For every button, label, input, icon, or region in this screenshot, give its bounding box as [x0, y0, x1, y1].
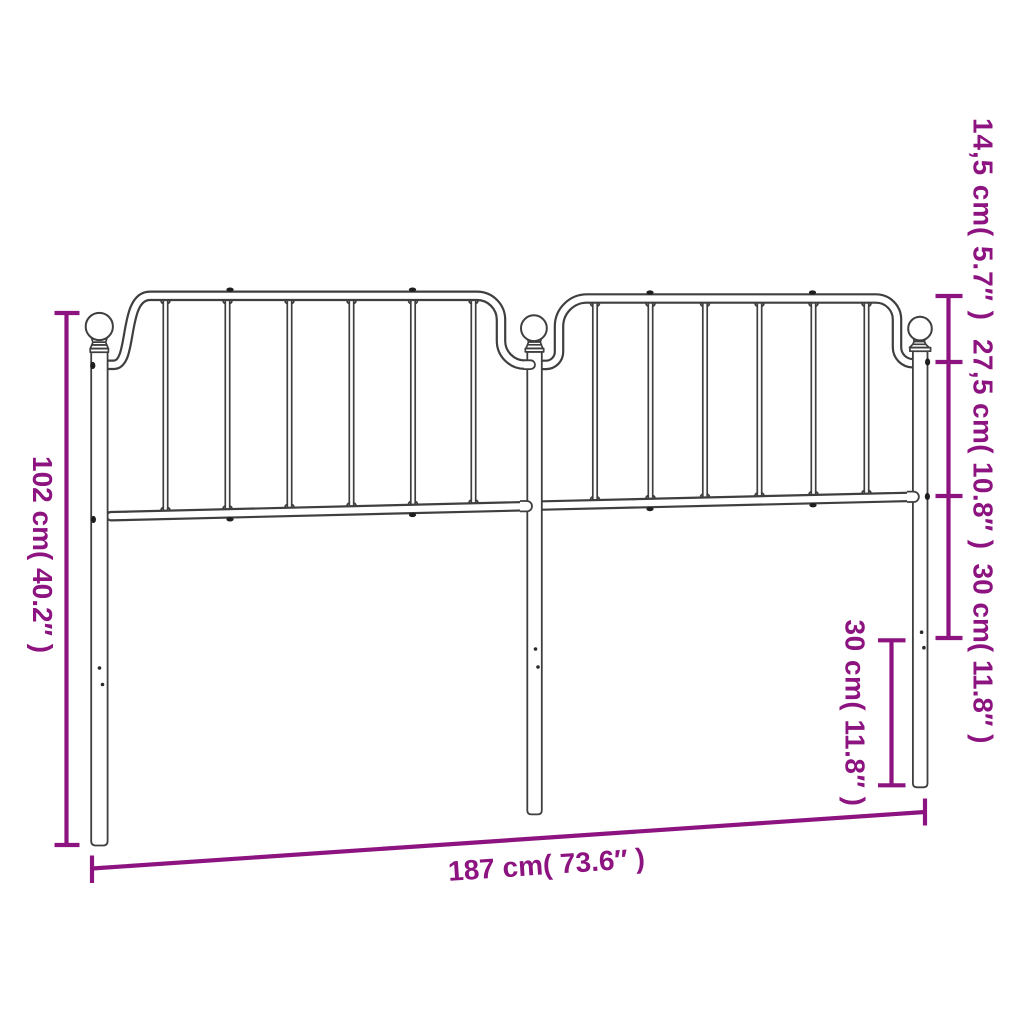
- svg-text:30 cm( 11.8″ ): 30 cm( 11.8″ ): [840, 620, 871, 807]
- svg-text:27,5 cm( 10.8″ ): 27,5 cm( 10.8″ ): [967, 339, 998, 549]
- svg-text:14,5 cm( 5.7″ ): 14,5 cm( 5.7″ ): [967, 118, 998, 321]
- svg-text:102 cm( 40.2″ ): 102 cm( 40.2″ ): [27, 456, 58, 653]
- svg-text:30 cm( 11.8″ ): 30 cm( 11.8″ ): [967, 564, 998, 744]
